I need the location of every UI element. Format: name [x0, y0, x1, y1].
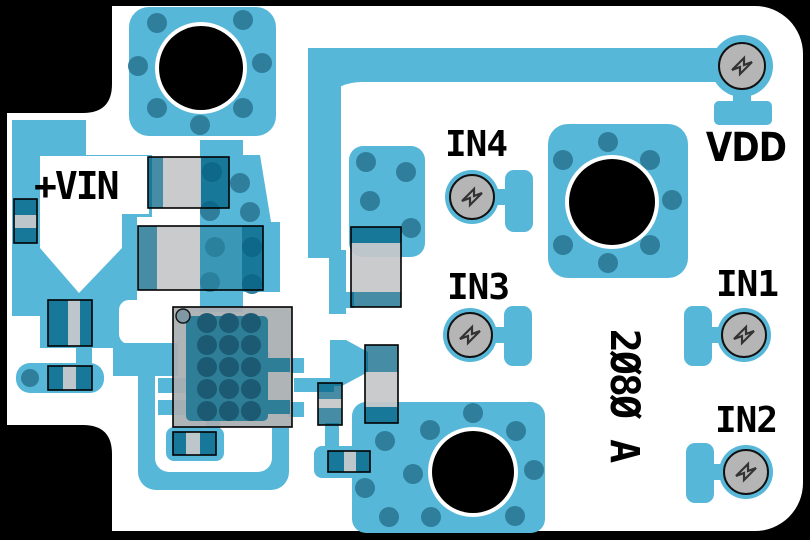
pcb-render: +VIN IN4 IN3 IN1 IN2 VDD 2Ø8Ø A: [0, 0, 810, 540]
test-point-in4: [450, 175, 494, 219]
ic-ball-grid: [197, 313, 261, 421]
in3-pad: [504, 306, 532, 366]
component-under-ic: [173, 432, 216, 455]
component-r1: [148, 157, 229, 208]
label-vin: +VIN: [34, 164, 118, 208]
component-cluster-cap: [351, 227, 401, 307]
label-vdd: VDD: [706, 124, 786, 170]
test-point-in1: [722, 313, 766, 357]
component-bottom-left: [48, 366, 92, 390]
mounting-hole-bottom: [432, 431, 514, 513]
test-point-vdd: [719, 43, 765, 89]
component-vin-lower: [48, 300, 92, 346]
vdd-pad: [714, 101, 772, 125]
in1-pad: [684, 306, 712, 366]
board-cutout-top-left: [0, 0, 112, 113]
label-in1: IN1: [716, 264, 778, 305]
label-in3: IN3: [447, 267, 509, 308]
in4-pad: [505, 170, 533, 232]
mounting-hole-top-left: [159, 26, 243, 110]
label-part-number: 2Ø8Ø A: [601, 329, 647, 463]
mounting-hole-center: [569, 159, 655, 245]
label-in2: IN2: [715, 400, 777, 441]
component-b: [328, 451, 370, 472]
test-point-in3: [448, 313, 492, 357]
component-r2: [138, 226, 263, 290]
in2-pad: [686, 443, 714, 503]
test-point-in2: [724, 450, 768, 494]
ic-package: [173, 307, 292, 427]
component-c: [365, 345, 398, 423]
label-in4: IN4: [445, 124, 507, 165]
ic-pin1-marker: [176, 309, 190, 323]
board-cutout-bottom-left: [0, 425, 112, 540]
component-a: [318, 383, 342, 425]
pcb-canvas: +VIN IN4 IN3 IN1 IN2 VDD 2Ø8Ø A: [0, 0, 810, 540]
